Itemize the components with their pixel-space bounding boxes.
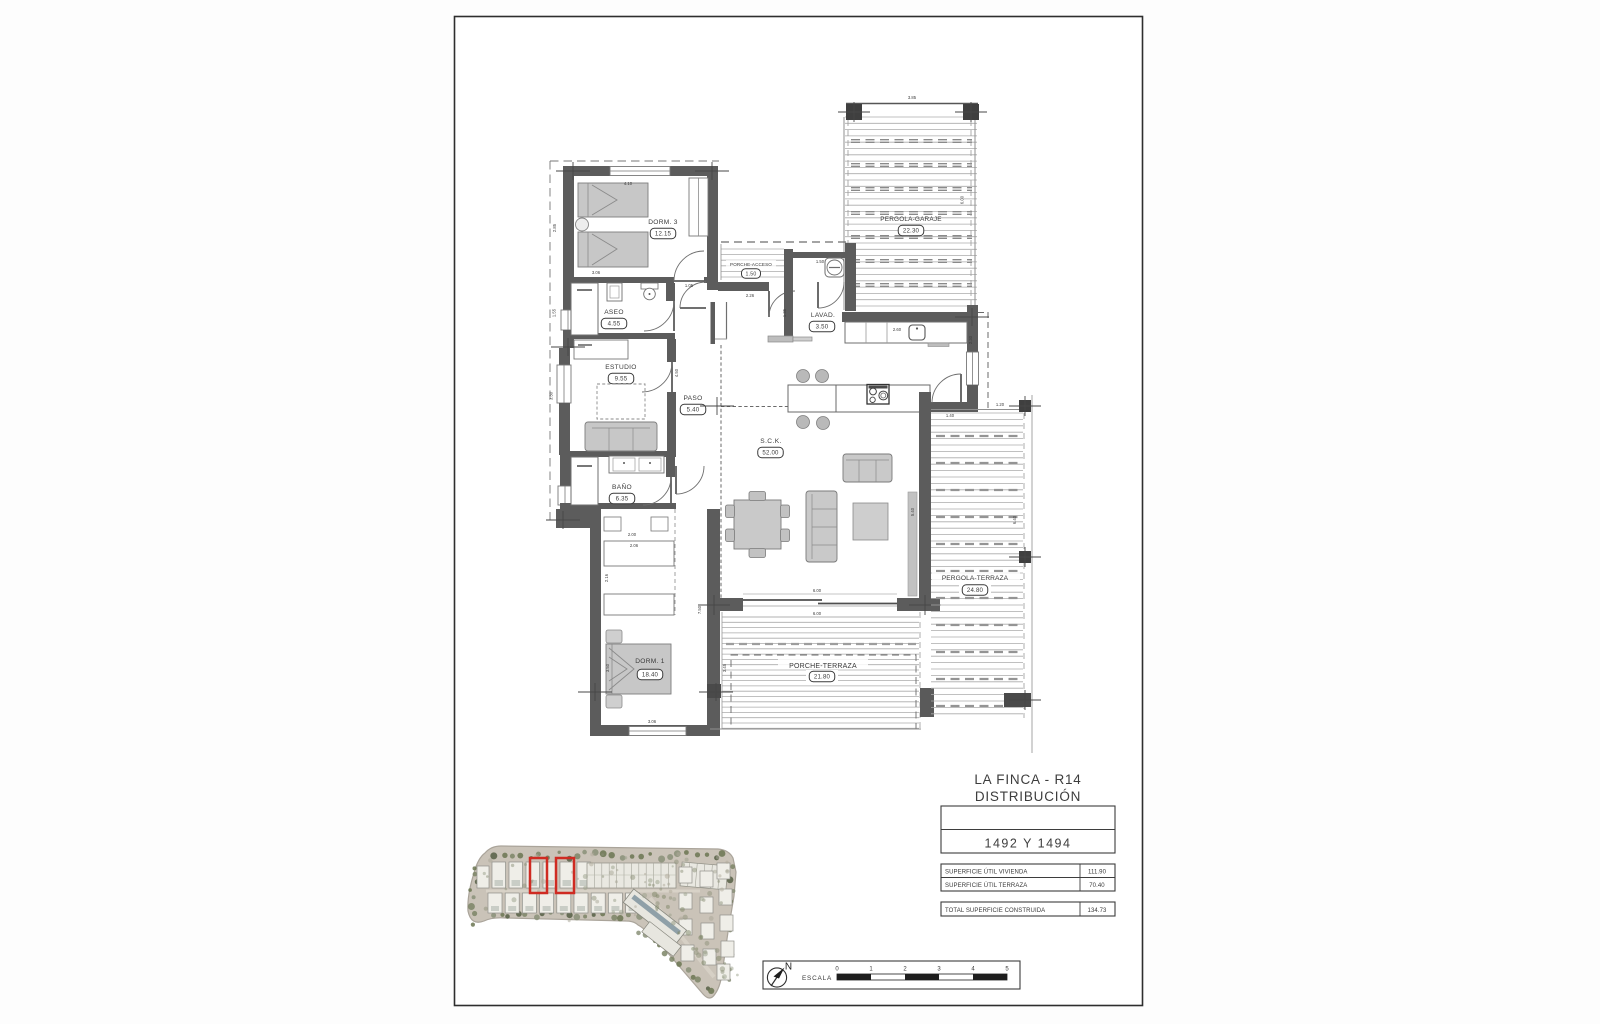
svg-text:7.50: 7.50 (697, 605, 702, 614)
svg-text:12.15: 12.15 (655, 231, 672, 238)
svg-text:LAVAD.: LAVAD. (811, 312, 835, 319)
svg-text:1492 Y 1494: 1492 Y 1494 (985, 837, 1072, 851)
svg-text:3.06: 3.06 (648, 719, 657, 724)
svg-text:ESCALA: ESCALA (802, 975, 832, 982)
svg-text:9.55: 9.55 (615, 376, 628, 383)
svg-text:4.50: 4.50 (674, 368, 679, 377)
svg-text:2.26: 2.26 (746, 293, 755, 298)
svg-text:1.05: 1.05 (685, 283, 694, 288)
svg-text:24.80: 24.80 (967, 587, 984, 594)
svg-text:18.40: 18.40 (642, 672, 659, 679)
svg-text:SUPERFICIE ÚTIL TERRAZA: SUPERFICIE ÚTIL TERRAZA (945, 882, 1027, 889)
svg-text:5.40: 5.40 (687, 407, 700, 414)
svg-text:2.60: 2.60 (893, 327, 902, 332)
svg-text:21.80: 21.80 (814, 674, 831, 681)
svg-text:2.00: 2.00 (628, 532, 637, 537)
svg-text:5.40: 5.40 (910, 507, 915, 516)
svg-text:2.06: 2.06 (630, 543, 639, 548)
svg-text:6.00: 6.00 (813, 588, 822, 593)
svg-text:3.30: 3.30 (549, 391, 554, 400)
svg-text:DORM. 1: DORM. 1 (635, 658, 665, 665)
svg-text:6.00: 6.00 (813, 611, 822, 616)
svg-text:SUPERFICIE ÚTIL VIVIENDA: SUPERFICIE ÚTIL VIVIENDA (945, 868, 1028, 875)
svg-text:ASEO: ASEO (604, 309, 624, 316)
svg-text:1.20: 1.20 (996, 402, 1005, 407)
svg-text:22.30: 22.30 (903, 228, 920, 235)
svg-text:52.00: 52.00 (762, 450, 779, 457)
svg-text:PORCHE-ACCESO: PORCHE-ACCESO (730, 262, 772, 267)
svg-text:70.40: 70.40 (1089, 883, 1105, 889)
svg-text:BAÑO: BAÑO (612, 482, 632, 491)
svg-text:1.35: 1.35 (782, 308, 787, 317)
svg-text:3.50: 3.50 (816, 324, 829, 331)
svg-text:TOTAL SUPERFICIE CONSTRUIDA: TOTAL SUPERFICIE CONSTRUIDA (945, 908, 1045, 914)
svg-text:PERGOLA-TERRAZA: PERGOLA-TERRAZA (942, 575, 1009, 582)
svg-text:4.10: 4.10 (624, 181, 633, 186)
svg-text:N: N (785, 962, 792, 973)
svg-text:2.85: 2.85 (552, 223, 557, 232)
svg-text:DORM. 3: DORM. 3 (648, 219, 678, 226)
svg-text:3.45: 3.45 (722, 663, 727, 672)
svg-text:PERGOLA-GARAJE: PERGOLA-GARAJE (880, 216, 941, 223)
svg-text:6.40: 6.40 (1012, 515, 1017, 524)
svg-text:S.C.K.: S.C.K. (760, 438, 781, 445)
svg-text:3.06: 3.06 (592, 270, 601, 275)
svg-text:LA FINCA - R14: LA FINCA - R14 (974, 772, 1081, 787)
svg-text:134.73: 134.73 (1088, 908, 1108, 914)
svg-text:1.50: 1.50 (746, 271, 757, 277)
svg-text:3.50: 3.50 (605, 663, 610, 672)
svg-text:1.55: 1.55 (552, 308, 557, 317)
svg-text:1.40: 1.40 (946, 413, 955, 418)
svg-text:4.55: 4.55 (608, 321, 621, 328)
svg-text:3.85: 3.85 (908, 95, 917, 100)
svg-text:6.00: 6.00 (960, 195, 965, 204)
svg-text:DISTRIBUCIÓN: DISTRIBUCIÓN (975, 789, 1081, 804)
svg-text:2.30: 2.30 (968, 335, 973, 344)
svg-text:ESTUDIO: ESTUDIO (605, 364, 636, 371)
svg-text:1.50: 1.50 (816, 259, 825, 264)
svg-text:PORCHE-TERRAZA: PORCHE-TERRAZA (789, 663, 857, 670)
svg-text:2.16: 2.16 (604, 573, 609, 582)
svg-text:111.90: 111.90 (1088, 869, 1107, 875)
svg-text:PASO: PASO (683, 395, 702, 402)
svg-text:6.35: 6.35 (616, 496, 629, 503)
